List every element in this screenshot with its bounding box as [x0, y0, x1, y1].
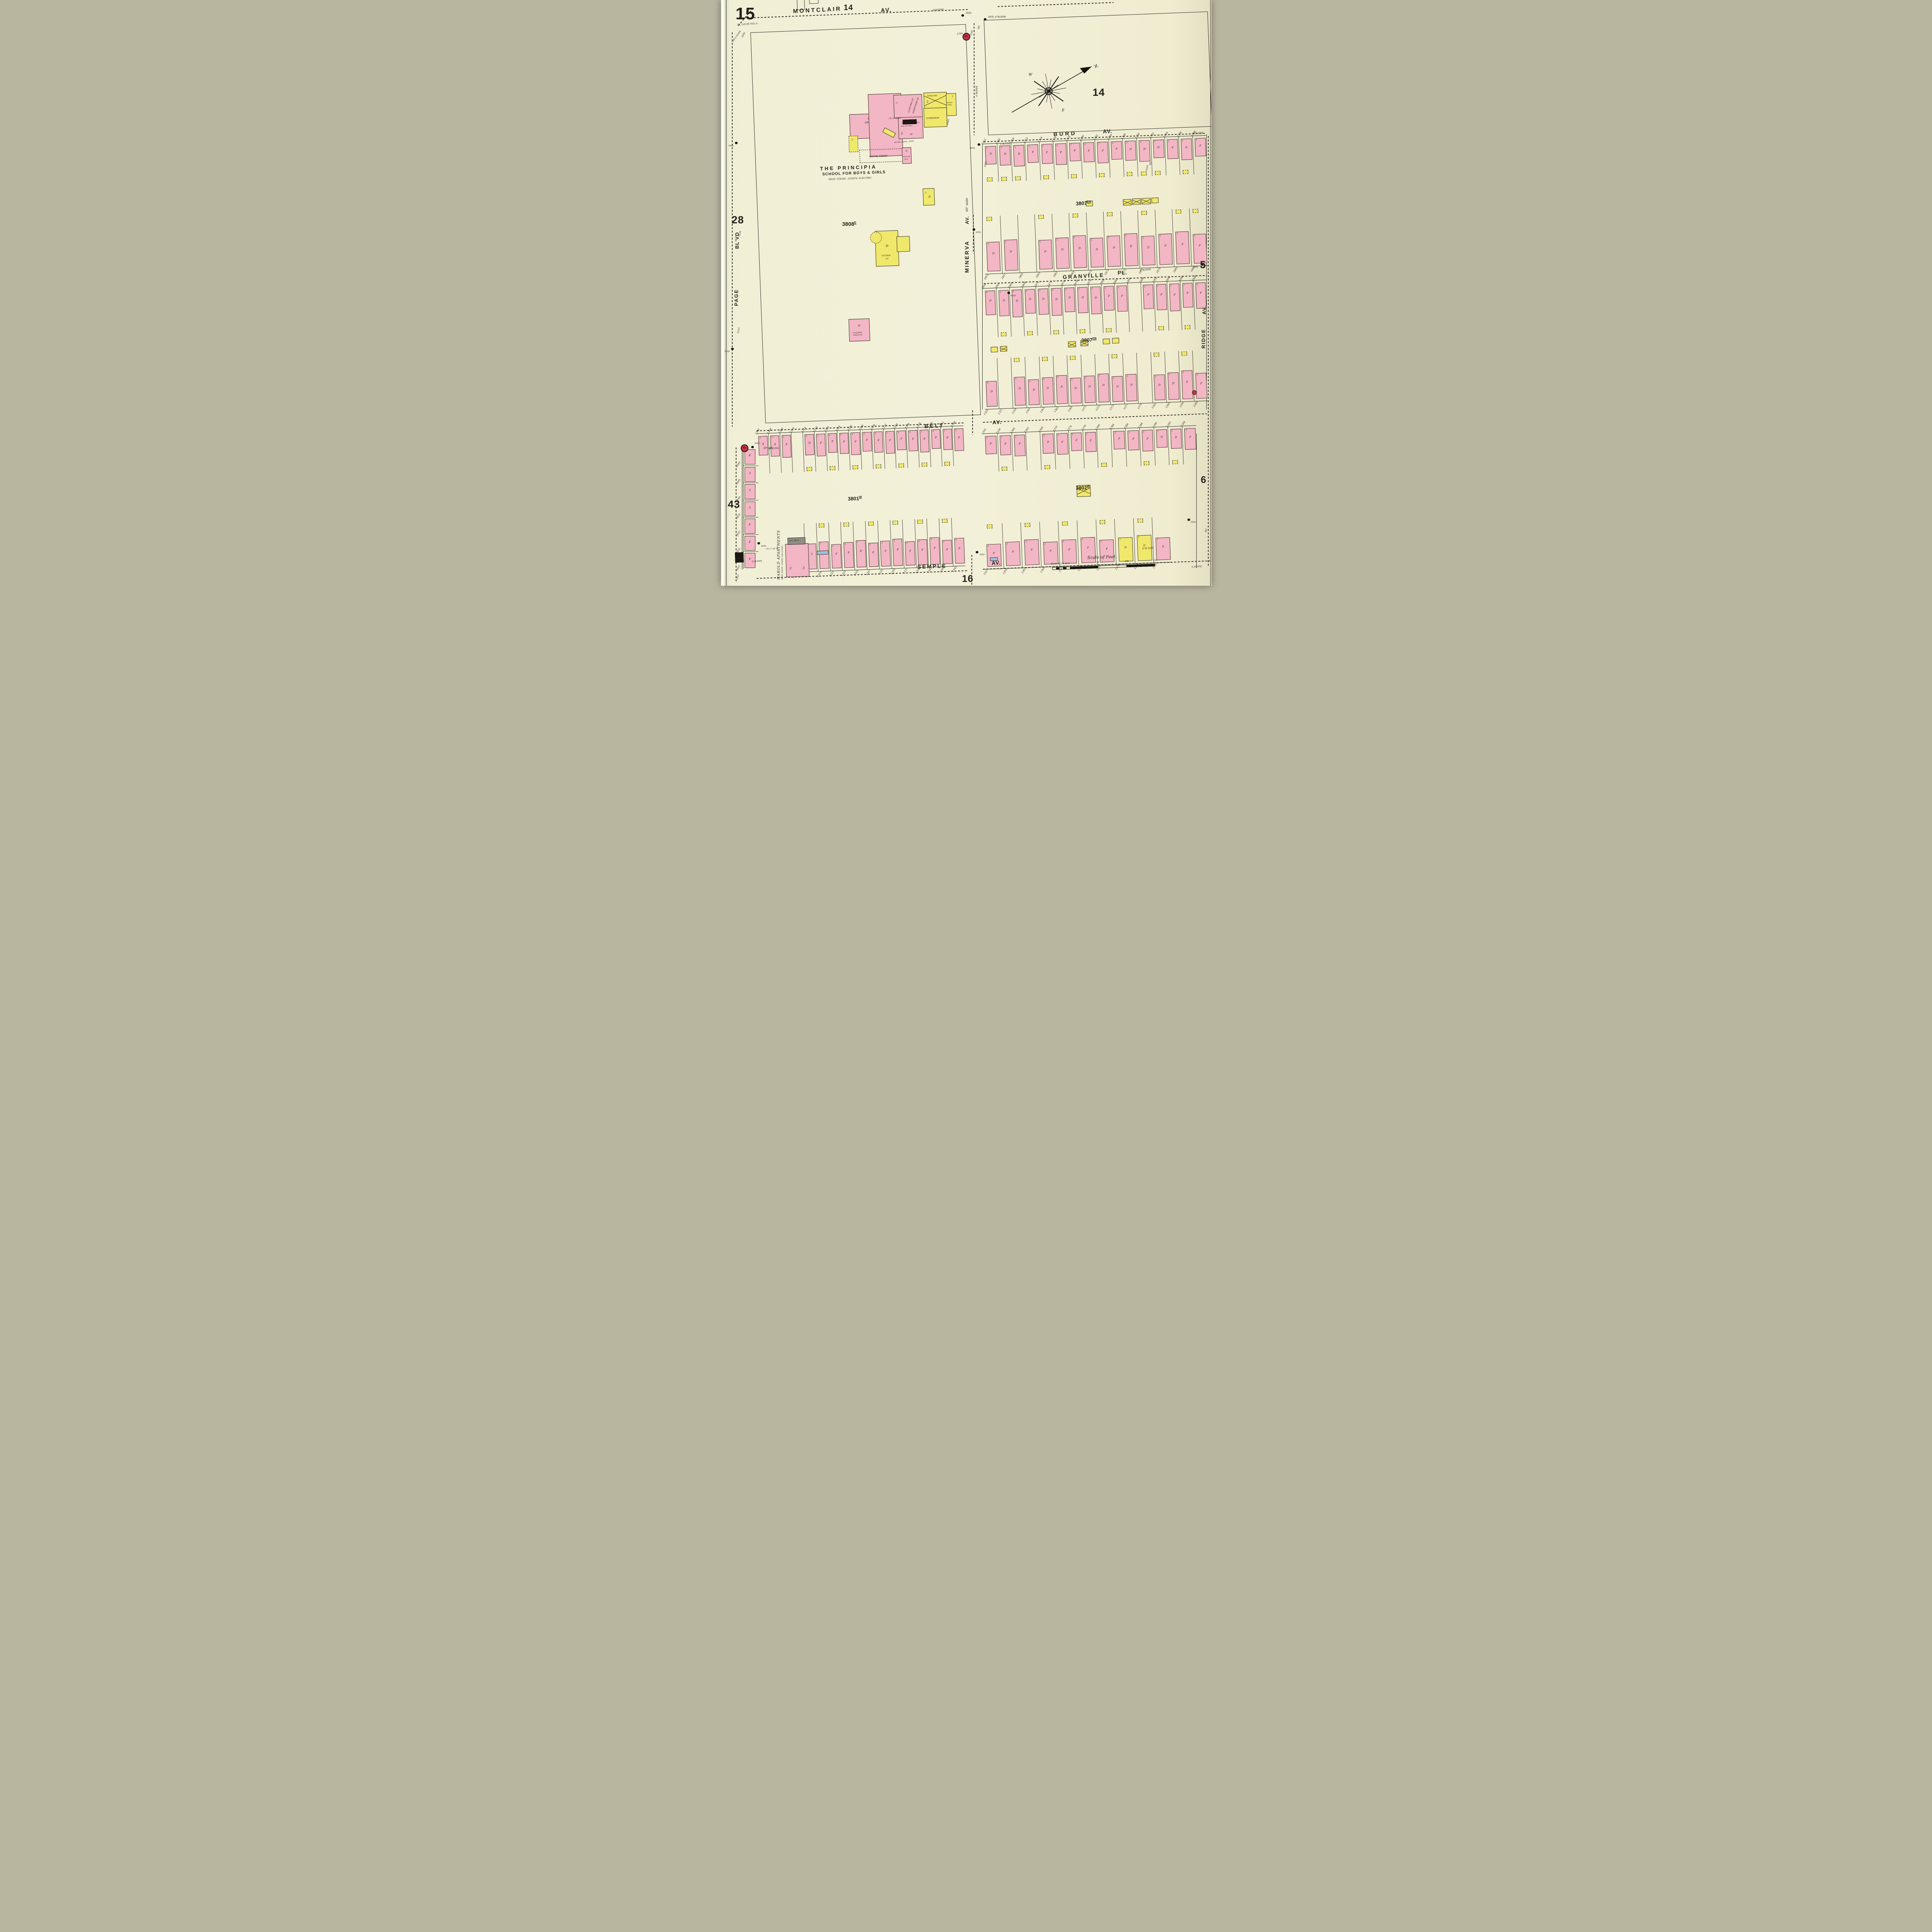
- lot-number: 1359: [1011, 408, 1017, 415]
- lot: 1371D2: [1080, 354, 1097, 406]
- house: D2: [1056, 375, 1068, 404]
- house-storeys: 2: [1196, 284, 1197, 286]
- house-letter: F: [1097, 149, 1107, 153]
- house-storeys: 2: [1072, 434, 1073, 436]
- house-letter: F: [1156, 293, 1166, 296]
- label:block-number-3807eb: 3807EB: [1081, 337, 1097, 343]
- house-storeys: 2: [1000, 146, 1002, 149]
- house: D2: [1097, 374, 1109, 403]
- building-label: STABLE BST: [927, 94, 937, 97]
- house: F: [745, 536, 755, 551]
- lot: 1306S2: [779, 432, 793, 473]
- house-storeys: 2: [1057, 376, 1058, 379]
- house-storeys: 2: [898, 432, 899, 434]
- house: S2: [781, 435, 791, 457]
- house-storeys: 2: [1063, 541, 1064, 543]
- house-letter: F: [840, 440, 848, 443]
- house: D2: [985, 291, 996, 315]
- house: F2: [1143, 284, 1154, 309]
- hydrant-dot: [735, 142, 738, 145]
- house-letter: F: [987, 552, 1000, 555]
- house: F2: [905, 541, 915, 565]
- lot: 1862D2: [996, 287, 1011, 337]
- house: D2: [1156, 429, 1167, 448]
- frame:sheet-stub-2: [809, 0, 819, 4]
- lot-number: 1394: [1180, 420, 1186, 427]
- house-letter: F: [955, 436, 963, 439]
- house-storeys: 2: [1065, 289, 1066, 291]
- house-letter: F: [1143, 293, 1153, 296]
- lot: 1374F2: [1068, 430, 1084, 469]
- house-letter: F: [1117, 294, 1127, 298]
- house-letter: F: [932, 436, 940, 439]
- lot-number: 1365: [1053, 406, 1059, 413]
- house: D2: [1083, 376, 1095, 403]
- lot: 1342F2: [940, 426, 954, 467]
- house: D2: [855, 540, 866, 567]
- house-letter: D: [1154, 383, 1164, 387]
- lot: 1332F2: [883, 428, 896, 469]
- label:corner-number-5443: 5443: [736, 574, 740, 580]
- label:corner-number-5582: 5582: [970, 30, 974, 36]
- house: F2: [1194, 138, 1206, 156]
- label:pipe-label-topleft: 6"W.PIPE: [735, 31, 742, 39]
- house: F2: [839, 433, 849, 454]
- house-storeys: 2: [832, 545, 833, 548]
- lot: 1325D2: [853, 521, 867, 570]
- house-letter: F: [1028, 151, 1038, 154]
- lot-number: 1355: [983, 409, 989, 416]
- building:alley-garage-ea-1: [1123, 199, 1132, 206]
- rear-shed: [1144, 461, 1149, 466]
- lot-number: 1337: [902, 568, 908, 575]
- house-letter: F: [1070, 149, 1080, 153]
- lot: 1356F2: [997, 432, 1013, 471]
- house-letter: D: [1142, 246, 1154, 249]
- house-letter: 3: [745, 489, 755, 492]
- lot: 1336F2: [906, 427, 919, 468]
- house-letter: F: [1043, 440, 1053, 444]
- lot-number: 1861: [1018, 272, 1024, 279]
- house-letter: D: [1126, 383, 1136, 387]
- lot-number: 1386: [1123, 423, 1129, 430]
- label:hydrant-label-top1: HYD.: [966, 12, 972, 15]
- label:street-page: PAGE: [734, 289, 739, 306]
- house-storeys: 2: [1119, 539, 1120, 541]
- hydrant-dot: [1187, 519, 1190, 521]
- house-letter: F: [828, 440, 837, 443]
- house-storeys: 2: [886, 432, 887, 434]
- building-label: 1: [925, 192, 927, 194]
- lot: 1365D2: [1053, 355, 1069, 407]
- house-letter: D: [1043, 386, 1053, 390]
- house: D2: [1141, 236, 1155, 265]
- pipe:pipe-belt-east: [983, 413, 1207, 423]
- house-storeys: 2: [1156, 539, 1158, 541]
- house: F2: [1180, 138, 1192, 160]
- house: F2: [1000, 435, 1011, 455]
- house-storeys: 2: [759, 437, 760, 439]
- house-storeys: 2: [1185, 429, 1187, 432]
- lot: 1880F2: [1101, 283, 1116, 333]
- label:street-ridge: RIDGE: [1201, 329, 1206, 349]
- rear-shed: [1193, 209, 1198, 213]
- rear-shed: [1024, 523, 1030, 527]
- rear-shed: [1107, 212, 1112, 216]
- rear-shed: [843, 522, 849, 527]
- house-storeys: 2: [986, 292, 987, 294]
- house: 3: [745, 484, 755, 499]
- lot-number: 1391: [1179, 401, 1185, 408]
- red-marker-ridge: [1192, 390, 1197, 395]
- house-letter: F: [893, 548, 902, 551]
- house-storeys: 2: [987, 545, 988, 548]
- lot: 1310: [791, 432, 804, 472]
- house-storeys: 2: [1113, 377, 1114, 379]
- house: D2: [1077, 287, 1088, 313]
- lot: 1330F2: [871, 429, 885, 469]
- house-letter: D: [1168, 382, 1178, 385]
- house-storeys: 2: [1100, 541, 1102, 543]
- house-letter: F: [1182, 380, 1192, 384]
- house: D2: [1024, 289, 1036, 314]
- rear-shed: [1141, 172, 1146, 176]
- house-letter: F: [851, 440, 860, 444]
- lot-number: 1323: [841, 570, 847, 577]
- house-storeys: 2: [1082, 538, 1083, 541]
- scale-tick-label: 150: [1153, 560, 1157, 562]
- house-letter: D: [1015, 387, 1025, 390]
- house-letter: D: [1065, 296, 1074, 299]
- house-storeys: 2: [852, 433, 853, 435]
- label:street-granville-pl: PL.: [1117, 270, 1127, 276]
- lot: 1857D2: [1000, 215, 1020, 274]
- house-letter: F: [1128, 437, 1138, 440]
- house-letter: F: [1114, 437, 1124, 440]
- lot: 1359D2: [1011, 357, 1027, 408]
- lot: 1882F2: [1114, 283, 1129, 333]
- house-letter: D: [1038, 298, 1048, 301]
- house-letter: D: [985, 299, 995, 303]
- house-storeys: 2: [1138, 536, 1139, 539]
- house: F2: [1167, 139, 1178, 159]
- house-letter: F: [1000, 442, 1010, 446]
- lot: 1885F2: [1189, 208, 1209, 267]
- lot-number: 1338: [915, 422, 922, 429]
- lot: 1894F2: [1167, 281, 1182, 330]
- lot: 1357: [997, 357, 1013, 409]
- scale-tick-label: 40: [1054, 563, 1057, 565]
- lot: 1858D2: [983, 288, 998, 338]
- house-letter: D: [986, 390, 997, 393]
- house-storeys: 2: [1177, 232, 1178, 235]
- lot-number: 1373: [1095, 404, 1101, 411]
- house-storeys: 2: [1052, 289, 1053, 291]
- hydrant-dot: [973, 228, 975, 231]
- label:street-belt: BELT: [924, 423, 944, 429]
- pipe:pipe-page-blvd: [732, 32, 733, 427]
- house-letter: F: [869, 551, 878, 554]
- lot-number: 1365: [1039, 566, 1046, 573]
- line:left-paper-edge: [726, 0, 726, 586]
- house-storeys: 2: [1117, 286, 1119, 289]
- lot: 1883F2: [1172, 208, 1191, 267]
- house-letter: S: [782, 443, 791, 446]
- house-storeys: 2: [1015, 436, 1016, 438]
- house-letter: F: [905, 549, 914, 553]
- rear-shed: [1184, 325, 1190, 330]
- house-storeys: 2: [1108, 236, 1109, 239]
- lot: 1359F2: [1002, 522, 1022, 569]
- house-letter: F: [986, 442, 996, 446]
- rear-shed: [1043, 175, 1048, 180]
- house: F2: [1156, 284, 1167, 310]
- label:corner-number-5539: 5539: [738, 231, 742, 237]
- house-storeys: 2: [921, 431, 922, 433]
- lot: 1878D2: [1088, 284, 1103, 333]
- lot: 1873D2: [1103, 211, 1122, 270]
- building-label: 1: [851, 139, 853, 141]
- house: F2: [954, 428, 964, 451]
- house: F2: [818, 541, 829, 569]
- house-letter: D: [1125, 244, 1137, 248]
- lot-number: 1377: [1122, 403, 1129, 410]
- lot-number: 1392: [1166, 421, 1172, 428]
- house-row-belt-south-east: 1354F21356F21360F213621366F21370F21374F2…: [983, 425, 1197, 472]
- house-letter: D: [1056, 248, 1068, 252]
- house-letter: F: [1170, 293, 1179, 296]
- lot-number: 1396: [1176, 131, 1182, 138]
- lot: 1863D2: [1034, 214, 1054, 272]
- house-storeys: 2: [1159, 235, 1160, 237]
- house: F2: [1169, 283, 1180, 311]
- line:left-street-edge: [742, 447, 742, 570]
- house: D2: [1126, 374, 1138, 401]
- lot: 1331F2: [877, 520, 892, 569]
- building-label: 1ST: [885, 257, 888, 259]
- house: F2: [816, 434, 826, 456]
- house-letter: F: [1083, 149, 1094, 153]
- lot-number: 1326: [847, 425, 853, 432]
- rear-shed: [1100, 520, 1105, 524]
- label:pipe-label-granville: 6"W.PIPE: [1140, 269, 1151, 272]
- house-storeys: 2: [1086, 433, 1087, 435]
- house-storeys: 2: [943, 541, 944, 543]
- house-storeys: 2: [1000, 291, 1001, 293]
- house: D2: [804, 434, 814, 455]
- house-storeys: 2: [1144, 286, 1145, 288]
- house-storeys: 2: [782, 436, 784, 438]
- label:volume-note: ST. LOUIS VOL.6.: [737, 22, 758, 26]
- house: F2: [1056, 433, 1068, 455]
- lot: 1890F2: [1140, 282, 1156, 332]
- house: F2: [919, 430, 929, 452]
- house-storeys: 2: [1157, 430, 1158, 433]
- house: F2: [1195, 282, 1206, 309]
- house: D2: [1112, 376, 1124, 402]
- house-storeys: 2: [986, 437, 987, 439]
- lot: 1866D2: [1009, 287, 1024, 337]
- house-letter: D: [1090, 248, 1103, 251]
- house-letter: D: [1107, 246, 1120, 250]
- rear-shed: [1172, 460, 1177, 464]
- pipe:pipe-minerva-belt: [972, 410, 973, 435]
- house-storeys: 2: [1104, 287, 1105, 289]
- label:block-number-3808e: 3808E: [842, 221, 857, 227]
- label:width-60-bottom: 60': [1204, 528, 1208, 533]
- house: D2: [1051, 288, 1062, 316]
- house-letter: F: [955, 546, 964, 550]
- house: F2: [885, 431, 895, 453]
- label:hydrant-label-minerva-burd: HYD.: [970, 148, 975, 150]
- compass-rose-icon: NWE: [1015, 54, 1108, 128]
- building-label: 26': [910, 133, 913, 136]
- label:corner-number-1800: 1800: [741, 32, 746, 38]
- lot: 1340F2: [929, 427, 942, 467]
- house-storeys: 2: [1044, 543, 1045, 545]
- label:corner-number-5515: 5515: [737, 327, 741, 333]
- scale-tick-label: 10: [1065, 563, 1067, 565]
- lot-number: 1325: [853, 569, 859, 576]
- house: F2: [908, 430, 918, 451]
- house-storeys: 2: [1042, 145, 1043, 147]
- rear-shed: [1042, 357, 1047, 361]
- rear-shed: [1153, 353, 1159, 357]
- house-storeys: 2: [1196, 139, 1197, 141]
- house: F2: [1128, 430, 1139, 451]
- house-storeys: 2: [869, 544, 870, 546]
- house-letter: D: [1029, 388, 1039, 391]
- lot: 1345F2: [951, 517, 966, 566]
- rear-shed: [819, 524, 824, 528]
- house-letter: D: [1051, 298, 1061, 301]
- lot-number: 1379: [1137, 403, 1143, 410]
- lot-number: 1384: [1109, 423, 1115, 430]
- scale-tick-label: 30: [1058, 563, 1060, 565]
- house-letter: D: [856, 549, 865, 553]
- lot-number: 1371: [1081, 405, 1087, 412]
- rear-shed: [1127, 172, 1132, 176]
- house-letter: F: [1176, 242, 1189, 246]
- house-letter: F: [1181, 146, 1191, 149]
- lot: 54513: [743, 500, 759, 518]
- rear-shed: [1071, 174, 1077, 179]
- hydrant-dot: [757, 542, 760, 545]
- house: F2: [985, 436, 997, 454]
- label:hydrant-label-ridge-bottom: HYD.: [1191, 522, 1196, 524]
- building-label: D: [928, 195, 930, 198]
- house-letter: F: [1167, 146, 1177, 149]
- house-storeys: 2: [1073, 236, 1075, 239]
- house: F: [745, 519, 755, 534]
- house: F2: [1085, 432, 1096, 452]
- lot-number: 1331: [878, 568, 884, 575]
- lot: 1396F2: [1178, 136, 1194, 175]
- rear-shed: [1062, 522, 1068, 526]
- label:street-belt-av: AV.: [992, 419, 1002, 425]
- scale-tick-label: 0: [1068, 562, 1070, 565]
- lot: 1321F2: [828, 522, 843, 571]
- lot-number: 1863: [1035, 271, 1041, 278]
- line:right-paper-crease: [1210, 0, 1211, 586]
- lot-number: 1366: [1038, 426, 1044, 433]
- rear-shed: [1158, 326, 1163, 330]
- house: F2: [831, 544, 842, 568]
- house-storeys: 2: [1084, 143, 1085, 146]
- building-label: D: [886, 244, 888, 248]
- house-storeys: 2: [1028, 145, 1029, 148]
- house-letter: D: [985, 152, 995, 156]
- house: D2: [1070, 378, 1082, 404]
- lot: 1376F2: [1053, 141, 1068, 180]
- building:school-stable: STABLE BST2: [923, 92, 947, 109]
- building:alley-garage-ea-2: [1132, 198, 1141, 205]
- house-letter: F: [862, 439, 871, 442]
- house: F2: [942, 429, 952, 450]
- house: F2: [942, 540, 952, 564]
- house: D2: [1013, 145, 1025, 167]
- label:block-number-3801w: 3801W: [848, 496, 862, 502]
- lot: 1374F2: [1039, 141, 1054, 180]
- scale-tick-label: 50: [1096, 561, 1099, 564]
- label:block-number-3807ea: 3807EA: [1076, 200, 1091, 206]
- house: D2: [1107, 235, 1121, 267]
- house-letter: F: [745, 541, 755, 544]
- label:sheet-number: 15: [736, 5, 755, 22]
- house: F2: [917, 539, 927, 565]
- lot: 1341F2: [927, 518, 941, 567]
- rear-shed: [1073, 214, 1078, 218]
- house-letter: F: [1056, 151, 1066, 154]
- building-label: 1: [952, 95, 953, 98]
- building:school-dormitory-hall: [903, 119, 917, 124]
- lot: 1319F2: [816, 522, 830, 571]
- x-mark: [1133, 199, 1141, 204]
- house-letter: D: [1014, 152, 1024, 156]
- rear-shed: [1175, 209, 1181, 214]
- house-storeys: 2: [932, 430, 933, 432]
- house-storeys: 2: [840, 434, 841, 436]
- house-storeys: 2: [1091, 239, 1092, 241]
- lot: 1869D2: [1069, 213, 1088, 271]
- label:street-burd: BURD: [1053, 130, 1077, 137]
- house: F2: [1097, 142, 1109, 163]
- house: F2: [862, 432, 872, 451]
- lot: 1380F2: [1080, 139, 1096, 179]
- rear-shed: [942, 519, 947, 523]
- lot-number: 1356: [995, 427, 1002, 434]
- lot: 1300S2: [757, 433, 770, 474]
- lot: 1354F2: [983, 433, 999, 472]
- lot-number: 1321: [828, 570, 835, 577]
- lot: 1390D2: [1136, 137, 1152, 176]
- label:hydrant-label-ridge: HYD.: [1193, 267, 1199, 269]
- label:street-semple-av: AV.: [992, 560, 1001, 566]
- house-storeys: 2: [844, 543, 845, 545]
- lot-number: 1865: [1052, 271, 1058, 278]
- lot-number: 1383: [1151, 402, 1157, 409]
- house-storeys: 2: [820, 543, 821, 545]
- house: D2: [1125, 141, 1136, 161]
- label:harold-apartments: HAROLD APARTMENTS: [777, 530, 781, 580]
- house-letter: D: [1084, 385, 1094, 388]
- lot: 1366F2: [1040, 431, 1056, 470]
- house-letter: D: [1125, 148, 1135, 151]
- scale-tick-label: 20: [1061, 563, 1064, 565]
- building-label: WALL BST ONLY: [901, 125, 912, 127]
- house: F2: [873, 431, 883, 452]
- lot-number: 1327: [865, 569, 871, 576]
